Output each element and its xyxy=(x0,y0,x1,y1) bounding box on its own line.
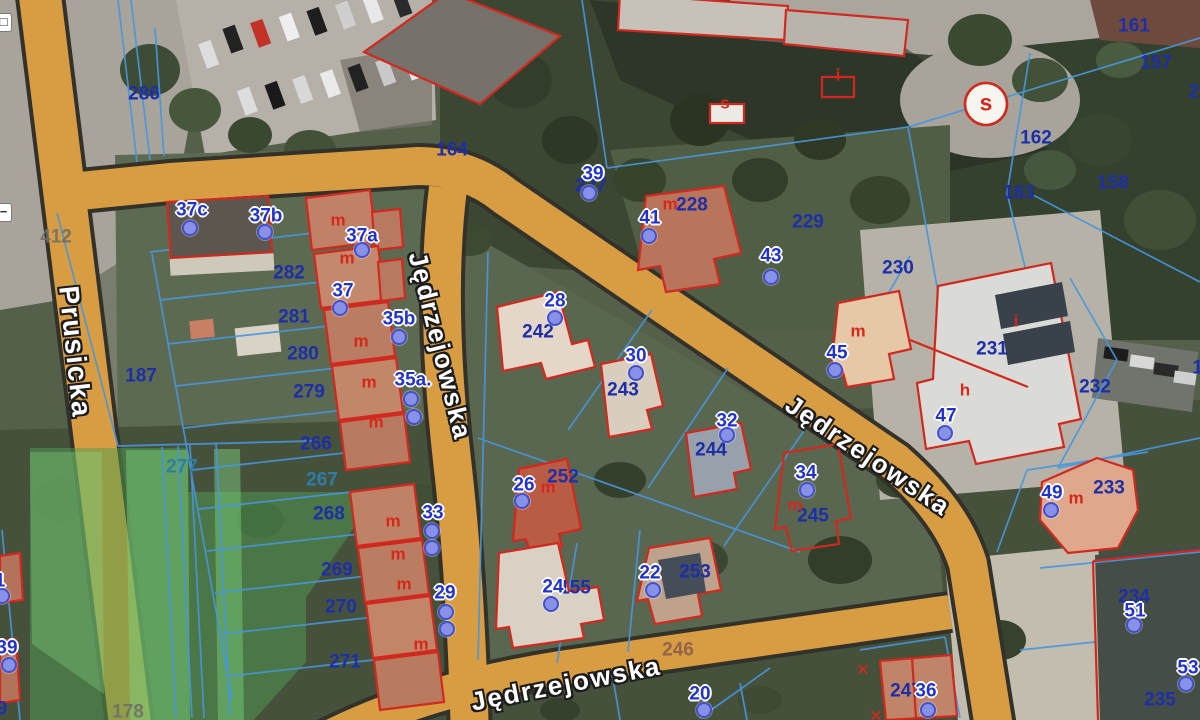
building-letter-m: m xyxy=(787,497,802,514)
parcel-label-269: 269 xyxy=(321,561,353,580)
building-letter-m: m xyxy=(662,196,677,213)
parcel-label-253: 253 xyxy=(679,563,711,582)
address-point-marker[interactable] xyxy=(719,427,735,443)
address-point-marker[interactable] xyxy=(424,540,440,556)
address-point-marker[interactable] xyxy=(696,702,712,718)
address-label-37b: 37b xyxy=(250,207,283,226)
building-letter-m: m xyxy=(368,414,383,431)
parcel-label-187: 187 xyxy=(125,367,157,386)
map-viewport[interactable]: 2861642822812802791872662682692702712422… xyxy=(0,0,1200,720)
address-point-marker[interactable] xyxy=(514,493,530,509)
address-point-marker[interactable] xyxy=(641,228,657,244)
address-label-29: 29 xyxy=(434,584,455,603)
building-letter-m: m xyxy=(353,333,368,350)
building-letter-m: m xyxy=(413,636,428,653)
parcel-label-161: 161 xyxy=(1118,17,1150,36)
map-labels-layer: 2861642822812802791872662682692702712422… xyxy=(0,0,1200,720)
building-letter-m: m xyxy=(385,513,400,530)
address-point-marker[interactable] xyxy=(439,621,455,637)
address-label-33: 33 xyxy=(422,504,443,523)
building-letter-s: s xyxy=(720,95,729,112)
parcel-label-279: 279 xyxy=(293,383,325,402)
address-point-marker[interactable] xyxy=(827,362,843,378)
building-letter-✕: ✕ xyxy=(856,662,870,679)
address-label-47: 47 xyxy=(935,407,956,426)
parcel-label-157: 157 xyxy=(1140,54,1172,73)
parcel-label-280: 280 xyxy=(287,345,319,364)
building-letter-s: s xyxy=(980,92,993,115)
building-letter-m: m xyxy=(850,323,865,340)
map-control-button-1[interactable]: − xyxy=(0,203,12,222)
parcel-label-246: 246 xyxy=(662,641,694,660)
address-label-26: 26 xyxy=(513,476,534,495)
address-point-marker[interactable] xyxy=(0,588,10,604)
parcel-label-163: 163 xyxy=(1003,184,1035,203)
address-point-marker[interactable] xyxy=(763,269,779,285)
parcel-label-228: 228 xyxy=(676,196,708,215)
parcel-label-178: 178 xyxy=(112,703,144,720)
address-point-marker[interactable] xyxy=(645,582,661,598)
parcel-label-243: 243 xyxy=(607,381,639,400)
parcel-label-162: 162 xyxy=(1020,129,1052,148)
parcel-label-235: 235 xyxy=(1144,691,1176,710)
address-point-marker[interactable] xyxy=(438,604,454,620)
address-label-37: 37 xyxy=(332,282,353,301)
address-label-53: 53 xyxy=(1177,659,1198,678)
parcel-label-268: 268 xyxy=(313,505,345,524)
address-point-marker[interactable] xyxy=(937,425,953,441)
parcel-label-270: 270 xyxy=(325,598,357,617)
building-letter-m: m xyxy=(361,374,376,391)
parcel-label-9: 9 xyxy=(0,700,7,719)
address-point-marker[interactable] xyxy=(581,185,597,201)
map-control-button-0[interactable]: □ xyxy=(0,13,12,32)
address-point-marker[interactable] xyxy=(1,657,17,673)
address-label-28: 28 xyxy=(544,292,565,311)
parcel-label-412: 412 xyxy=(40,228,72,247)
address-point-marker[interactable] xyxy=(628,365,644,381)
address-label-34: 34 xyxy=(795,464,816,483)
parcel-label-29: 29 xyxy=(1188,83,1200,102)
address-label-30: 30 xyxy=(625,347,646,366)
address-label-45: 45 xyxy=(826,344,847,363)
parcel-label-229: 229 xyxy=(792,213,824,232)
address-label-37c: 37c xyxy=(176,201,208,220)
building-letter-i: i xyxy=(836,67,841,84)
address-point-marker[interactable] xyxy=(257,224,273,240)
address-point-marker[interactable] xyxy=(391,329,407,345)
address-label-35a.: 35a. xyxy=(395,371,432,390)
address-label-22: 22 xyxy=(639,564,660,583)
parcel-label-164: 164 xyxy=(436,141,468,160)
address-point-marker[interactable] xyxy=(182,220,198,236)
parcel-label-231: 231 xyxy=(976,340,1008,359)
parcel-label-282: 282 xyxy=(273,264,305,283)
address-point-marker[interactable] xyxy=(332,300,348,316)
address-point-marker[interactable] xyxy=(354,242,370,258)
address-label-41: 41 xyxy=(639,209,660,228)
parcel-label-286: 286 xyxy=(128,85,160,104)
address-label-24: 24 xyxy=(542,578,563,597)
parcel-label-277: 277 xyxy=(166,458,198,477)
parcel-label-230: 230 xyxy=(882,259,914,278)
parcel-label-233: 233 xyxy=(1093,479,1125,498)
building-letter-m: m xyxy=(339,250,354,267)
address-point-marker[interactable] xyxy=(547,310,563,326)
building-letter-✕: ✕ xyxy=(869,708,883,720)
parcel-label-244: 244 xyxy=(695,441,727,460)
building-letter-m: m xyxy=(396,576,411,593)
address-point-marker[interactable] xyxy=(543,596,559,612)
building-letter-h: h xyxy=(960,382,970,399)
address-label-43: 43 xyxy=(760,247,781,266)
parcel-label-232: 232 xyxy=(1079,378,1111,397)
address-label-39: 39 xyxy=(0,639,18,658)
address-label-39: 39 xyxy=(582,165,603,184)
parcel-label-267: 267 xyxy=(306,471,338,490)
address-point-marker[interactable] xyxy=(403,391,419,407)
address-point-marker[interactable] xyxy=(1178,676,1194,692)
parcel-label-266: 266 xyxy=(300,435,332,454)
address-point-marker[interactable] xyxy=(406,409,422,425)
address-label-20: 20 xyxy=(689,685,710,704)
address-point-marker[interactable] xyxy=(1043,502,1059,518)
building-letter-m: m xyxy=(540,479,555,496)
building-letter-m: m xyxy=(1068,490,1083,507)
address-point-marker[interactable] xyxy=(424,523,440,539)
building-letter-m: m xyxy=(330,212,345,229)
address-point-marker[interactable] xyxy=(920,702,936,718)
parcel-label-158: 158 xyxy=(1097,174,1129,193)
address-point-marker[interactable] xyxy=(799,482,815,498)
parcel-label-281: 281 xyxy=(278,308,310,327)
address-point-marker[interactable] xyxy=(1126,617,1142,633)
parcel-label-271: 271 xyxy=(329,653,361,672)
building-letter-m: m xyxy=(390,546,405,563)
parcel-label-15: 15 xyxy=(1192,359,1200,378)
address-label-49: 49 xyxy=(1041,484,1062,503)
address-label-36: 36 xyxy=(915,682,936,701)
building-letter-i: i xyxy=(1014,313,1019,330)
address-label-35b: 35b xyxy=(383,310,416,329)
parcel-label-242: 242 xyxy=(522,323,554,342)
parcel-label-155: 155 xyxy=(559,579,591,598)
